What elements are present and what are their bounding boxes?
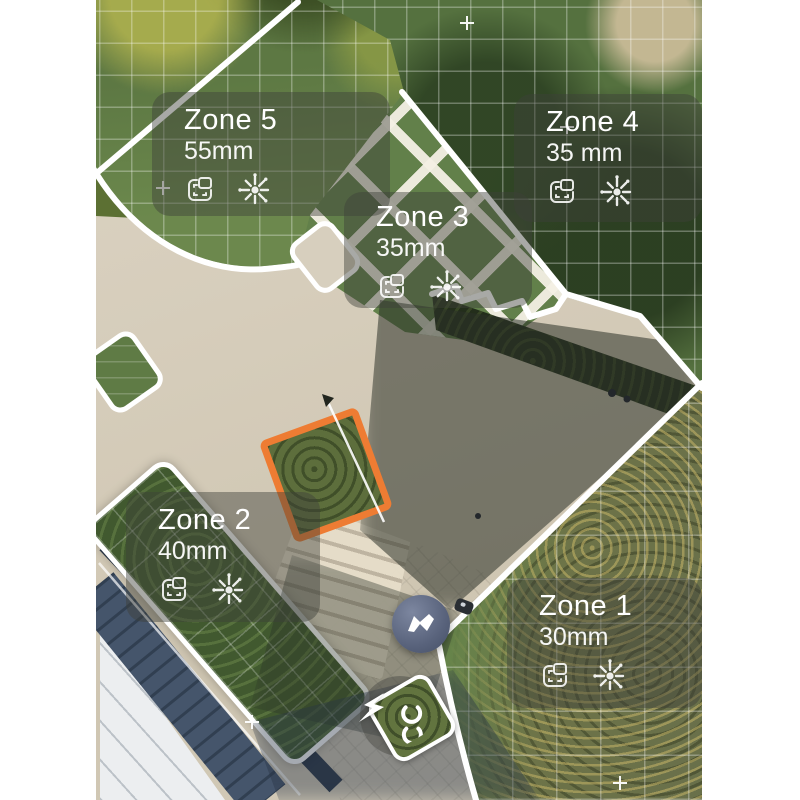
map-empty-margin-right	[702, 0, 800, 800]
zone-card-zone3[interactable]: Zone 3 35mm	[344, 192, 532, 308]
zone-cut-height: 40mm	[158, 536, 320, 566]
mow-burst-icon	[593, 659, 627, 693]
zone-area-icon	[158, 576, 188, 604]
zone-area-icon	[546, 178, 576, 206]
zone-name: Zone 1	[539, 590, 702, 622]
zone-area-icon	[376, 273, 406, 301]
lightning-bolt-icon	[358, 692, 390, 724]
robot-position-marker[interactable]	[392, 595, 450, 653]
zone-area-icon	[184, 176, 214, 204]
zone-cut-height: 35 mm	[546, 138, 702, 168]
zone-name: Zone 4	[546, 106, 702, 138]
zone-card-zone4[interactable]: Zone 4 35 mm	[514, 94, 702, 222]
zone-card-zone2[interactable]: Zone 2 40mm	[126, 492, 320, 622]
zone-card-zone1[interactable]: Zone 1 30mm	[507, 578, 702, 708]
mow-burst-icon	[238, 173, 272, 207]
charge-station-glyph	[385, 691, 440, 746]
mow-burst-icon	[600, 175, 634, 209]
zone-name: Zone 3	[376, 201, 532, 233]
mow-burst-icon	[430, 270, 464, 304]
zone-cut-height: 30mm	[539, 622, 702, 652]
zone-area-icon	[539, 662, 569, 690]
mow-burst-icon	[212, 573, 246, 607]
app-screen: Zone 5 55mm	[0, 0, 800, 800]
zone-cut-height: 35mm	[376, 233, 532, 263]
zone-name: Zone 5	[184, 104, 390, 136]
map-canvas[interactable]: Zone 5 55mm	[0, 0, 800, 800]
mammotion-m-logo-icon	[403, 610, 439, 638]
zone-cut-height: 55mm	[184, 136, 390, 166]
map-empty-margin-left	[0, 0, 96, 800]
zone-name: Zone 2	[158, 504, 320, 536]
